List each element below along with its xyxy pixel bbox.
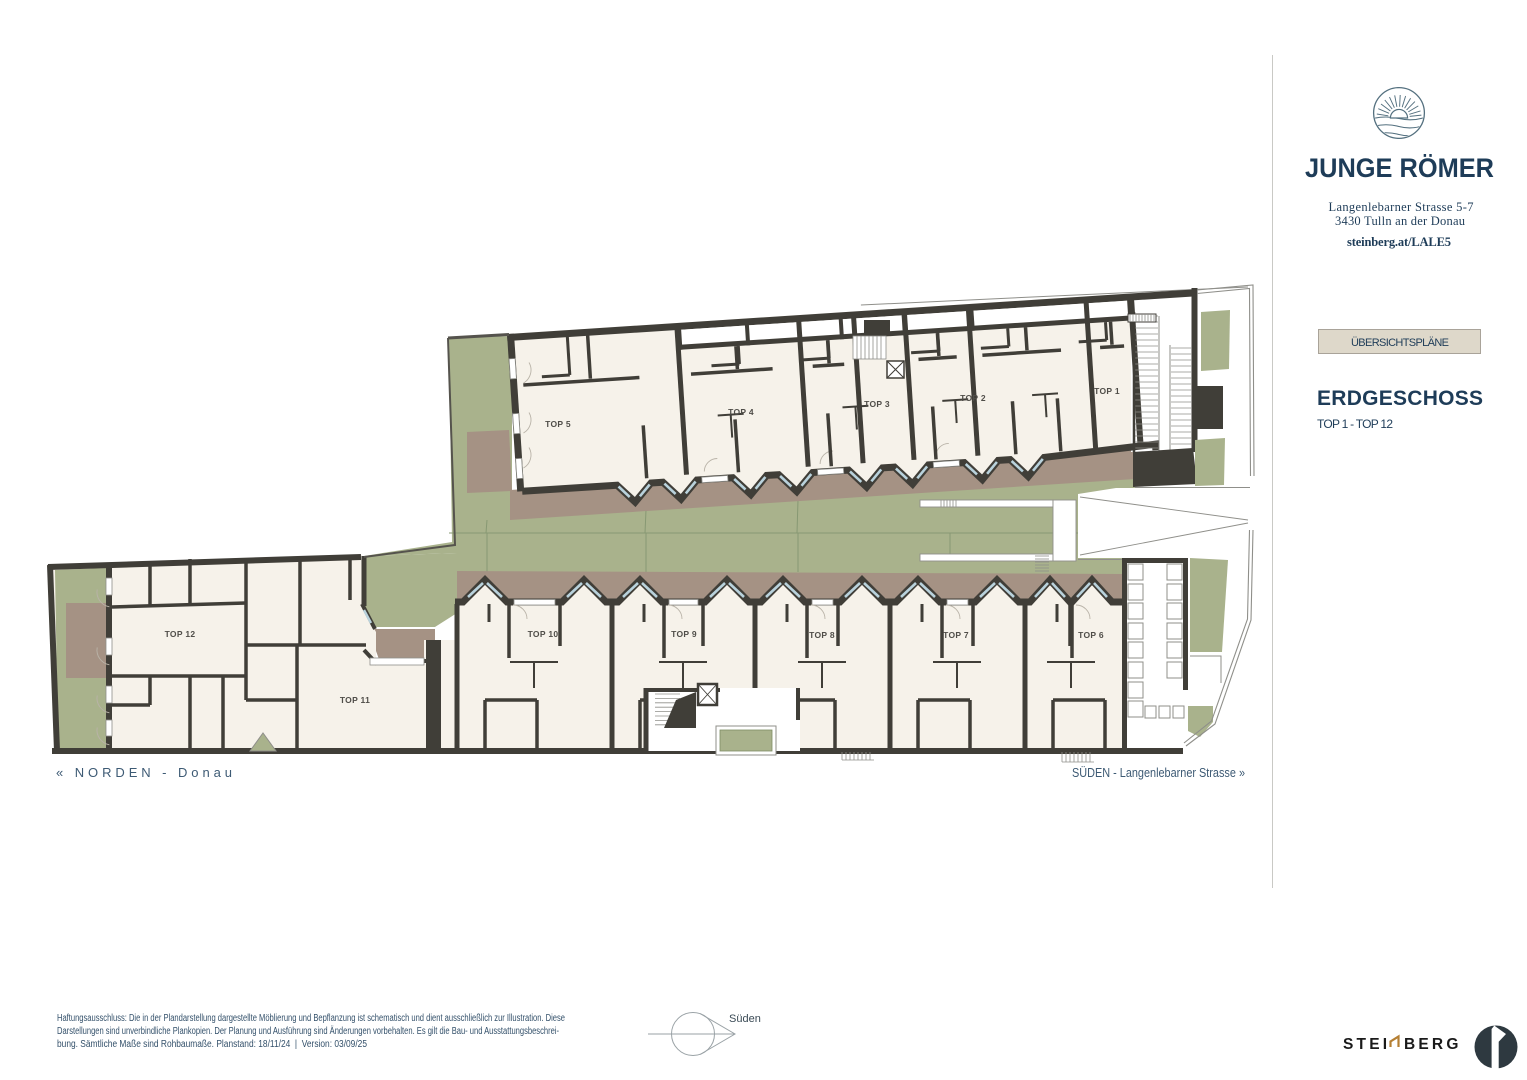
svg-text:bung. Sämtliche Maße sind Rohb: bung. Sämtliche Maße sind Rohbaumaße. Pl… — [57, 1039, 367, 1050]
svg-text:STEI: STEI — [1343, 1036, 1390, 1053]
svg-text:TOP 1 - TOP 12: TOP 1 - TOP 12 — [1317, 417, 1393, 431]
svg-text:TOP 10: TOP 10 — [528, 629, 559, 639]
svg-text:TOP 8: TOP 8 — [809, 630, 835, 640]
svg-text:TOP 1: TOP 1 — [1094, 386, 1120, 396]
svg-text:JUNGE RÖMER: JUNGE RÖMER — [1305, 153, 1494, 183]
svg-text:3430 Tulln an der Donau: 3430 Tulln an der Donau — [1335, 214, 1466, 228]
svg-text:Darstellungen sind unverbindli: Darstellungen sind unverbindliche Planko… — [57, 1025, 559, 1037]
svg-text:TOP 12: TOP 12 — [165, 629, 196, 639]
svg-text:TOP 2: TOP 2 — [960, 393, 986, 403]
svg-text:steinberg.at/LALE5: steinberg.at/LALE5 — [1347, 235, 1451, 249]
svg-text:ERDGESCHOSS: ERDGESCHOSS — [1317, 387, 1483, 410]
svg-text:TOP 3: TOP 3 — [864, 399, 890, 409]
svg-text:TOP 4: TOP 4 — [728, 407, 754, 417]
svg-text:Süden: Süden — [729, 1013, 761, 1025]
svg-text:BERG: BERG — [1404, 1036, 1462, 1053]
svg-text:Langenlebarner Strasse 5-7: Langenlebarner Strasse 5-7 — [1329, 200, 1474, 214]
svg-text:TOP 5: TOP 5 — [545, 419, 571, 429]
svg-text:Haftungsausschluss: Die in der: Haftungsausschluss: Die in der Plandarst… — [57, 1013, 565, 1024]
svg-text:TOP 7: TOP 7 — [943, 630, 969, 640]
svg-text:SÜDEN - Langenlebarner Strasse: SÜDEN - Langenlebarner Strasse » — [1072, 765, 1245, 780]
svg-text:TOP 11: TOP 11 — [340, 695, 370, 705]
svg-text:« NORDEN - Donau: « NORDEN - Donau — [56, 765, 232, 780]
svg-text:ÜBERSICHTSPLÄNE: ÜBERSICHTSPLÄNE — [1351, 337, 1449, 349]
svg-text:TOP 9: TOP 9 — [671, 629, 697, 639]
svg-text:TOP 6: TOP 6 — [1078, 630, 1104, 640]
